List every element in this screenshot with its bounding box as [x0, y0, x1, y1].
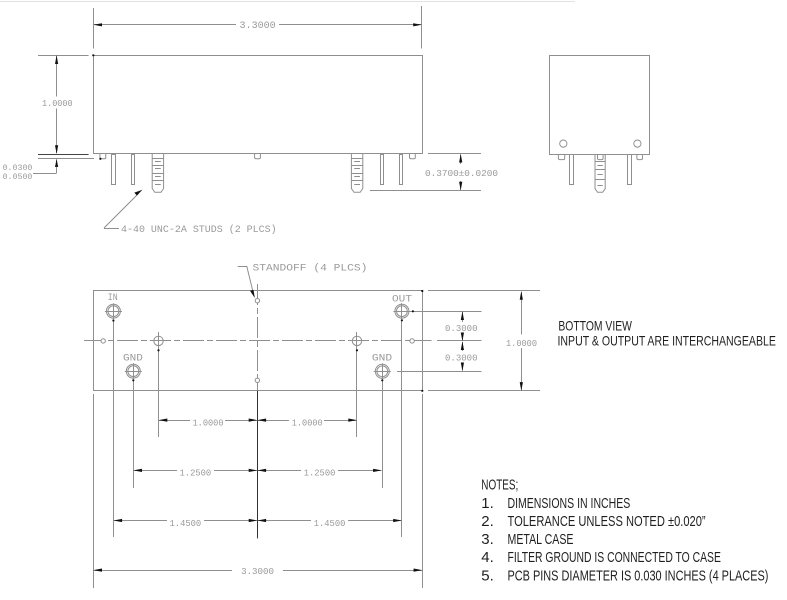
svg-text:1.0000: 1.0000	[42, 99, 73, 109]
svg-text:3.3000: 3.3000	[241, 567, 274, 577]
svg-text:0.3000: 0.3000	[445, 324, 478, 334]
svg-text:OUT: OUT	[392, 295, 412, 306]
svg-text:5.: 5.	[481, 567, 494, 584]
svg-text:TOLERANCE UNLESS NOTED ±0.020”: TOLERANCE UNLESS NOTED ±0.020”	[508, 513, 706, 530]
svg-text:2.: 2.	[481, 513, 494, 530]
svg-text:0.3700±0.0200: 0.3700±0.0200	[425, 168, 498, 179]
svg-text:IN: IN	[108, 293, 118, 304]
svg-text:4-40 UNC-2A STUDS (2 PLCS): 4-40 UNC-2A STUDS (2 PLCS)	[121, 224, 277, 236]
svg-text:1.0000: 1.0000	[506, 339, 537, 349]
svg-text:1.2500: 1.2500	[304, 469, 336, 479]
svg-text:INPUT & OUTPUT ARE INTERCHANGE: INPUT & OUTPUT ARE INTERCHANGEABLE	[558, 333, 776, 349]
svg-text:GND: GND	[372, 354, 392, 365]
svg-text:PCB PINS DIAMETER IS 0.030 INC: PCB PINS DIAMETER IS 0.030 INCHES (4 PLA…	[508, 567, 769, 584]
svg-text:GND: GND	[123, 353, 143, 364]
svg-text:3.: 3.	[481, 531, 494, 548]
svg-text:0.3000: 0.3000	[445, 353, 478, 363]
svg-text:FILTER GROUND IS CONNECTED TO: FILTER GROUND IS CONNECTED TO CASE	[508, 549, 721, 566]
svg-text:4.: 4.	[481, 549, 494, 566]
svg-text:NOTES;: NOTES;	[481, 476, 518, 493]
svg-text:BOTTOM VIEW: BOTTOM VIEW	[558, 318, 632, 334]
svg-text:1.4500: 1.4500	[170, 519, 202, 529]
svg-text:DIMENSIONS IN INCHES: DIMENSIONS IN INCHES	[508, 495, 631, 512]
svg-text:1.0000: 1.0000	[292, 418, 323, 428]
svg-text:1.: 1.	[481, 495, 494, 512]
svg-text:0.0500: 0.0500	[3, 172, 33, 182]
svg-text:STANDOFF (4 PLCS): STANDOFF (4 PLCS)	[253, 262, 368, 274]
svg-text:1.4500: 1.4500	[314, 519, 346, 529]
svg-text:3.3000: 3.3000	[240, 21, 276, 32]
svg-text:1.2500: 1.2500	[180, 469, 212, 479]
svg-text:METAL CASE: METAL CASE	[508, 531, 574, 548]
svg-text:1.0000: 1.0000	[193, 418, 224, 428]
